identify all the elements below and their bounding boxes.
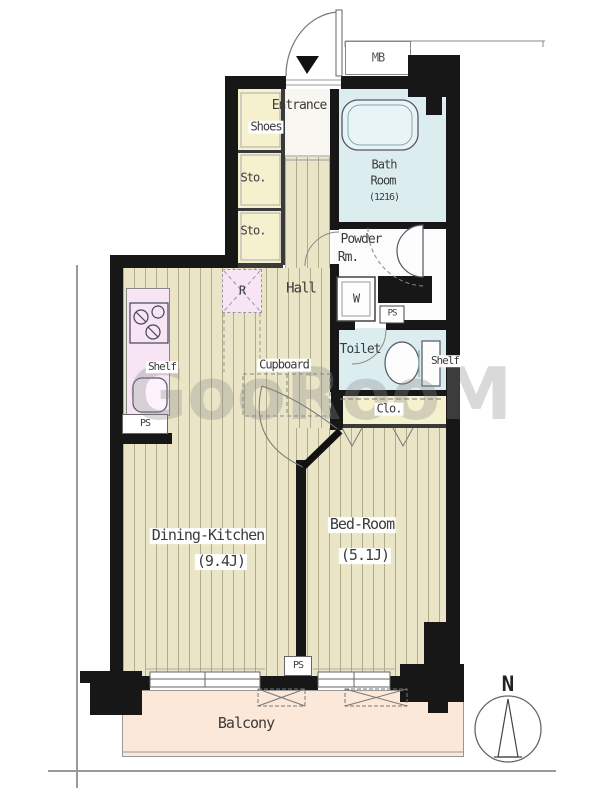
wall-powder-toilet-a	[333, 320, 355, 330]
wall-left-upper	[225, 76, 238, 268]
label-balcony: Balcony	[216, 716, 276, 732]
compass	[475, 696, 541, 762]
wall-hall-bath	[330, 89, 339, 230]
label-sto-2: Sto.	[239, 225, 268, 238]
wall-dk-bedroom	[296, 460, 306, 676]
label-shelf-toilet: Shelf	[429, 355, 461, 367]
wall-step	[110, 255, 238, 268]
sto-hall-divider	[281, 89, 285, 265]
label-closet: Clo.	[375, 403, 404, 416]
floor-plan: GooRooM	[0, 0, 600, 800]
pillar-bottom-right-b	[400, 664, 464, 702]
label-mb: MB	[370, 52, 386, 65]
label-ps-bottom: PS	[291, 661, 305, 672]
wall-powder-toilet-b	[386, 320, 446, 330]
entrance-arrow-icon	[296, 56, 319, 74]
wall-kitchen-stub	[123, 433, 172, 444]
kitchen-counter	[126, 288, 170, 416]
label-ps-kitchen: PS	[138, 419, 152, 430]
label-fridge: R	[237, 285, 247, 298]
label-bath-1: Bath	[370, 159, 399, 172]
label-dining-kitchen: Dining-Kitchen	[150, 528, 266, 544]
hall-floor	[285, 157, 330, 268]
wall-toilet-closet	[333, 390, 446, 396]
label-shoes: Shoes	[248, 121, 283, 134]
label-bedroom-size: (5.1J)	[339, 548, 391, 564]
pillar-bottom-left-b	[90, 683, 142, 715]
sto-divider-2	[238, 208, 283, 211]
label-bedroom: Bed-Room	[328, 517, 396, 533]
label-ps-powder: PS	[386, 309, 399, 318]
label-cupboard: Cupboard	[257, 359, 311, 372]
wall-hall-powder	[330, 264, 339, 328]
wall-bottom-b	[260, 676, 318, 690]
wall-door-stub	[330, 408, 343, 430]
wall-hall-toilet	[330, 328, 339, 392]
duct-block	[378, 276, 432, 303]
pillar-top-right-stub	[426, 97, 442, 115]
label-shelf-kitchen: Shelf	[146, 361, 178, 373]
pillar-bottom-left-a	[80, 671, 142, 683]
label-sto-1: Sto.	[239, 172, 268, 185]
sto-divider-3	[238, 263, 283, 268]
pillar-bottom-right-a	[424, 622, 452, 668]
label-dk-size: (9.4J)	[195, 554, 247, 570]
label-powder-2: Rm.	[336, 251, 360, 265]
wall-right	[446, 76, 460, 690]
label-compass-north: N	[500, 673, 517, 695]
label-washer: W	[351, 293, 361, 306]
wall-closet-front	[336, 424, 446, 428]
label-entrance: Entrance	[270, 99, 329, 113]
label-hall: Hall	[284, 282, 318, 297]
label-bath-size: (1216)	[367, 193, 401, 204]
wall-bath-powder	[333, 222, 446, 229]
wall-left-lower	[110, 255, 123, 690]
label-bath-2: Room	[369, 175, 398, 188]
label-toilet: Toilet	[338, 343, 383, 357]
label-powder-1: Powder	[339, 233, 384, 247]
pillar-bottom-right-c	[428, 700, 448, 713]
entrance-door	[286, 10, 342, 85]
sto-divider-1	[238, 150, 283, 153]
